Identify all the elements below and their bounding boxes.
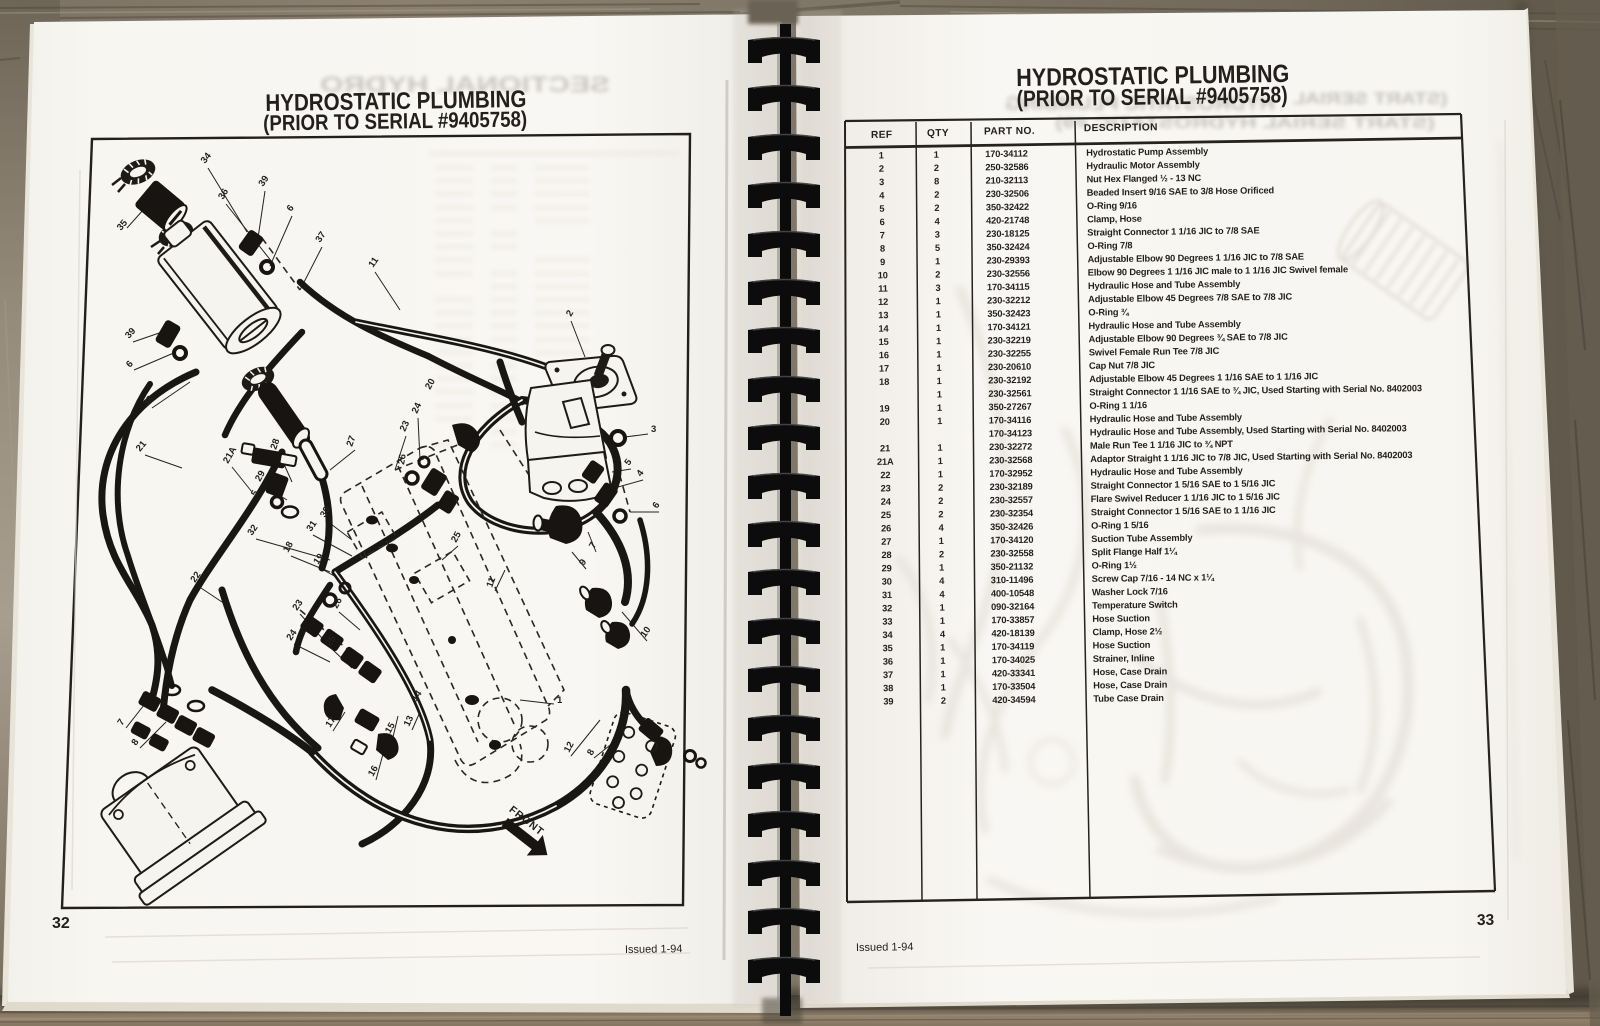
svg-text:14: 14	[878, 324, 889, 334]
svg-text:1: 1	[936, 363, 941, 373]
svg-text:33: 33	[882, 617, 892, 627]
svg-text:1: 1	[940, 642, 945, 652]
svg-text:230-20610: 230-20610	[988, 362, 1031, 373]
svg-text:16: 16	[879, 350, 889, 360]
svg-text:Hose Suction: Hose Suction	[1092, 613, 1150, 624]
svg-text:Hose Suction: Hose Suction	[1093, 640, 1151, 651]
svg-text:O-Ring 1 1/16: O-Ring 1 1/16	[1089, 400, 1147, 411]
svg-text:230-32506: 230-32506	[986, 189, 1029, 200]
svg-text:(PRIOR TO SERIAL #9405758): (PRIOR TO SERIAL #9405758)	[263, 106, 527, 135]
svg-text:350-32422: 350-32422	[986, 202, 1029, 213]
svg-text:230-32255: 230-32255	[988, 348, 1031, 359]
svg-text:20: 20	[880, 417, 890, 427]
svg-text:26: 26	[881, 523, 891, 533]
svg-text:6: 6	[879, 217, 884, 227]
svg-text:34: 34	[882, 630, 893, 640]
svg-text:O-Ring 1½: O-Ring 1½	[1092, 560, 1138, 571]
svg-text:3: 3	[935, 283, 940, 293]
svg-text:250-32586: 250-32586	[985, 162, 1028, 173]
svg-text:28: 28	[881, 550, 891, 560]
svg-text:5: 5	[879, 204, 884, 214]
svg-text:Cap Nut 7/8 JIC: Cap Nut 7/8 JIC	[1089, 360, 1156, 371]
svg-text:Hose, Case Drain: Hose, Case Drain	[1093, 666, 1168, 677]
svg-text:36: 36	[883, 657, 893, 667]
svg-text:11: 11	[878, 284, 888, 294]
svg-text:Hose, Case Drain: Hose, Case Drain	[1093, 680, 1168, 691]
svg-text:Suction Tube Assembly: Suction Tube Assembly	[1091, 533, 1193, 544]
svg-text:Split Flange Half 1¼: Split Flange Half 1¼	[1091, 546, 1178, 557]
svg-text:1: 1	[939, 563, 944, 573]
svg-text:27: 27	[881, 537, 891, 547]
svg-text:230-32189: 230-32189	[989, 482, 1032, 493]
svg-text:230-18125: 230-18125	[986, 228, 1029, 239]
svg-text:310-11496: 310-11496	[991, 575, 1034, 586]
svg-text:230-32219: 230-32219	[988, 335, 1031, 346]
svg-text:29: 29	[882, 563, 892, 573]
svg-text:350-21132: 350-21132	[991, 561, 1034, 572]
svg-text:3: 3	[879, 177, 884, 187]
svg-text:1: 1	[940, 669, 945, 679]
svg-text:35: 35	[883, 643, 893, 653]
svg-text:3: 3	[651, 424, 656, 435]
svg-text:210-32113: 210-32113	[985, 175, 1028, 186]
svg-text:REF: REF	[871, 130, 893, 141]
svg-text:2: 2	[938, 509, 943, 519]
svg-text:230-32556: 230-32556	[987, 268, 1030, 279]
svg-text:420-34594: 420-34594	[992, 695, 1036, 706]
svg-text:230-32192: 230-32192	[988, 375, 1031, 386]
svg-text:Swivel Female Run Tee 7/8 JIC: Swivel Female Run Tee 7/8 JIC	[1089, 346, 1220, 358]
svg-text:1: 1	[941, 682, 946, 692]
svg-text:1: 1	[937, 389, 942, 399]
svg-text:10: 10	[878, 270, 888, 280]
svg-text:Male Run Tee 1 1/16 JIC to ¾ N: Male Run Tee 1 1/16 JIC to ¾ NPT	[1090, 439, 1233, 451]
svg-text:21: 21	[880, 443, 890, 453]
svg-text:2: 2	[934, 203, 939, 213]
svg-text:350-32426: 350-32426	[990, 521, 1033, 532]
svg-text:Washer Lock 7/16: Washer Lock 7/16	[1092, 586, 1168, 597]
svg-text:O-Ring 1 5/16: O-Ring 1 5/16	[1091, 520, 1149, 531]
svg-text:25: 25	[881, 510, 891, 520]
svg-text:090-32164: 090-32164	[991, 601, 1035, 612]
svg-text:23: 23	[880, 483, 890, 493]
svg-text:19: 19	[879, 403, 889, 413]
svg-text:1: 1	[937, 443, 942, 453]
svg-text:32: 32	[52, 915, 70, 932]
svg-text:O-Ring 7/8: O-Ring 7/8	[1087, 240, 1132, 251]
svg-text:37: 37	[883, 670, 893, 680]
svg-text:1: 1	[940, 603, 945, 613]
svg-text:Nut Hex Flanged ½ - 13 NC: Nut Hex Flanged ½ - 13 NC	[1086, 173, 1201, 185]
svg-text:18: 18	[879, 377, 889, 387]
svg-text:230-32212: 230-32212	[987, 295, 1030, 306]
svg-text:21A: 21A	[877, 457, 894, 467]
svg-text:350-27267: 350-27267	[988, 402, 1031, 413]
svg-text:22: 22	[880, 470, 890, 480]
svg-text:33: 33	[1477, 912, 1495, 929]
svg-text:230-29393: 230-29393	[987, 255, 1030, 266]
svg-text:Issued 1-94: Issued 1-94	[856, 941, 914, 954]
svg-text:31: 31	[882, 590, 892, 600]
svg-text:350-32424: 350-32424	[986, 242, 1030, 253]
svg-text:7: 7	[880, 230, 885, 240]
svg-text:8: 8	[934, 176, 939, 186]
svg-text:12: 12	[878, 297, 888, 307]
svg-text:230-32354: 230-32354	[990, 508, 1034, 519]
svg-text:1: 1	[934, 150, 939, 160]
svg-text:170-34123: 170-34123	[989, 428, 1032, 439]
svg-text:Tube Case Drain: Tube Case Drain	[1093, 693, 1164, 704]
svg-text:Clamp, Hose 2½: Clamp, Hose 2½	[1092, 626, 1162, 637]
svg-text:1: 1	[879, 150, 884, 160]
svg-text:1: 1	[940, 616, 945, 626]
svg-text:1: 1	[936, 296, 941, 306]
svg-text:170-32952: 170-32952	[989, 468, 1032, 479]
svg-text:Hydraulic Hose and Tube Assemb: Hydraulic Hose and Tube Assembly	[1088, 279, 1241, 291]
svg-text:2: 2	[939, 549, 944, 559]
svg-text:Hydraulic Hose and Tube Assemb: Hydraulic Hose and Tube Assembly	[1088, 319, 1241, 331]
svg-text:2: 2	[934, 163, 939, 173]
svg-text:8: 8	[880, 244, 885, 254]
svg-text:Clamp, Hose: Clamp, Hose	[1087, 214, 1142, 225]
svg-text:Hydraulic Motor Assembly: Hydraulic Motor Assembly	[1086, 160, 1200, 171]
svg-text:Issued 1-94: Issued 1-94	[625, 943, 683, 956]
svg-text:170-34119: 170-34119	[992, 641, 1035, 652]
svg-text:39: 39	[883, 696, 893, 706]
svg-text:O-Ring ¾: O-Ring ¾	[1088, 307, 1130, 318]
svg-text:170-34120: 170-34120	[990, 535, 1033, 546]
svg-text:O-Ring 9/16: O-Ring 9/16	[1087, 200, 1137, 211]
svg-text:1: 1	[935, 256, 940, 266]
svg-text:230-32558: 230-32558	[990, 548, 1033, 559]
svg-text:24: 24	[881, 497, 892, 507]
svg-text:Strainer, Inline: Strainer, Inline	[1093, 653, 1155, 664]
svg-text:Hydraulic Hose and Tube Assemb: Hydraulic Hose and Tube Assembly	[1090, 465, 1243, 477]
svg-text:1: 1	[937, 403, 942, 413]
svg-text:2: 2	[941, 696, 946, 706]
svg-text:420-21748: 420-21748	[986, 215, 1029, 226]
svg-text:2: 2	[879, 164, 884, 174]
svg-text:5: 5	[935, 243, 940, 253]
svg-text:170-34116: 170-34116	[989, 415, 1032, 426]
svg-text:2: 2	[935, 270, 940, 280]
svg-text:30: 30	[882, 577, 892, 587]
svg-text:350-32423: 350-32423	[987, 308, 1030, 319]
svg-text:170-33504: 170-33504	[992, 681, 1036, 692]
svg-text:170-34112: 170-34112	[985, 149, 1028, 160]
svg-text:400-10548: 400-10548	[991, 588, 1034, 599]
svg-text:1: 1	[937, 376, 942, 386]
svg-text:1: 1	[936, 336, 941, 346]
svg-text:(START SERIAL: (START SERIAL	[1293, 89, 1448, 108]
svg-text:170-34025: 170-34025	[992, 655, 1035, 666]
svg-text:1: 1	[936, 323, 941, 333]
svg-text:2: 2	[938, 496, 943, 506]
svg-text:230-32272: 230-32272	[989, 442, 1032, 453]
svg-text:15: 15	[879, 337, 889, 347]
svg-text:1: 1	[938, 456, 943, 466]
svg-text:1: 1	[938, 469, 943, 479]
svg-text:(PRIOR TO SERIAL #9405758): (PRIOR TO SERIAL #9405758)	[1016, 81, 1287, 111]
svg-text:420-33341: 420-33341	[992, 668, 1035, 679]
svg-text:1: 1	[936, 309, 941, 319]
svg-text:9: 9	[880, 257, 885, 267]
svg-text:Temperature Switch: Temperature Switch	[1092, 600, 1178, 611]
svg-text:230-32557: 230-32557	[990, 495, 1033, 506]
svg-text:230-32568: 230-32568	[989, 455, 1032, 466]
svg-text:38: 38	[883, 683, 893, 693]
svg-text:PART NO.: PART NO.	[984, 126, 1035, 138]
svg-text:Screw Cap 7/16 - 14 NC x 1¼: Screw Cap 7/16 - 14 NC x 1¼	[1092, 572, 1216, 584]
svg-text:170-33857: 170-33857	[991, 615, 1034, 626]
svg-text:1: 1	[939, 536, 944, 546]
svg-text:230-32561: 230-32561	[988, 388, 1031, 399]
svg-text:26: 26	[396, 453, 409, 465]
svg-text:13: 13	[878, 310, 888, 320]
svg-text:Hydrostatic Pump Assembly: Hydrostatic Pump Assembly	[1086, 146, 1209, 158]
svg-text:1: 1	[557, 695, 563, 706]
svg-text:1: 1	[936, 349, 941, 359]
svg-text:DESCRIPTION: DESCRIPTION	[1084, 122, 1158, 134]
svg-text:32: 32	[882, 603, 892, 613]
svg-text:170-34121: 170-34121	[987, 322, 1030, 333]
svg-text:1: 1	[937, 416, 942, 426]
svg-text:Hydraulic Hose and Tube Assemb: Hydraulic Hose and Tube Assembly	[1090, 412, 1243, 424]
svg-text:420-18139: 420-18139	[991, 628, 1034, 639]
svg-text:170-34115: 170-34115	[987, 282, 1030, 293]
svg-text:2: 2	[934, 190, 939, 200]
svg-text:1: 1	[940, 656, 945, 666]
svg-text:2: 2	[938, 483, 943, 493]
svg-text:QTY: QTY	[927, 128, 949, 139]
svg-text:3: 3	[935, 230, 940, 240]
svg-text:17: 17	[879, 363, 889, 373]
